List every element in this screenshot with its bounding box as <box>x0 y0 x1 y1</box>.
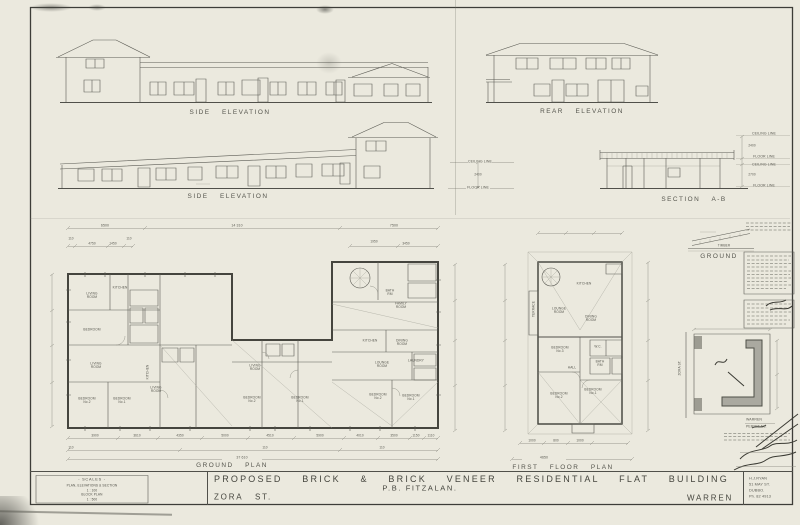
dim: 1000 <box>576 439 583 443</box>
signature-block <box>724 414 798 470</box>
room-label: DINING ROOM <box>585 315 597 322</box>
architect-line: Ph. 82 4913 <box>749 495 771 499</box>
terrace-label: TERRACE <box>532 301 536 317</box>
room-label: BEDROOM No.2 <box>243 396 260 403</box>
room-label: W.C. <box>594 345 601 349</box>
room-label: BATH RM <box>386 289 395 296</box>
dim-ground-overall: 37 610 <box>236 456 247 460</box>
dim: 1450 <box>109 242 116 246</box>
room-label: BEDROOM No.2 <box>78 397 95 404</box>
room-label: LIVING ROOM <box>90 362 101 369</box>
room-label: LIVING ROOM <box>249 364 260 371</box>
room-label: BATH RM <box>596 360 605 367</box>
scales-line2: BLOCK PLAN <box>81 493 102 497</box>
room-label: KITCHEN <box>577 282 592 286</box>
scales-value1: 1 : 100 <box>87 489 98 493</box>
detail-ground-label: GROUND <box>700 253 737 260</box>
room-label: BEDROOM No.2 <box>550 392 567 399</box>
floor-line-right2-label: FLOOR LINE <box>753 184 775 188</box>
dim: 4350 <box>176 434 183 438</box>
scanned-drawing-page: SIDE ELEVATION REAR ELEVATION SIDE ELEVA… <box>0 0 800 525</box>
section-drawing <box>448 135 790 189</box>
dim: 3500 <box>390 434 397 438</box>
stamp-town: WARREN <box>746 418 762 422</box>
sheet-frame <box>31 8 793 505</box>
dim: 1150 <box>412 434 419 438</box>
scales-heading: - SCALES - <box>78 478 106 482</box>
dim-first-overall: 4650 <box>540 456 548 460</box>
room-label: LAUNDRY <box>408 359 424 363</box>
dim: 4750 <box>88 242 95 246</box>
room-label: FAMILY ROOM <box>395 302 407 309</box>
dim: 3450 <box>402 242 409 246</box>
dim: 3610 <box>133 434 140 438</box>
dim: 3900 <box>91 434 98 438</box>
scales-value2: 1 : 500 <box>87 498 98 502</box>
scales-line1: PLAN, ELEVATIONS & SECTION <box>67 484 118 488</box>
section-dim-right1: 2400 <box>748 144 755 148</box>
ceiling-line-left-label: CEILING LINE <box>468 160 492 164</box>
drawing-linework <box>0 0 800 525</box>
dim: 6500 <box>101 224 109 228</box>
room-label: BEDROOM No.1 <box>584 388 601 395</box>
rear-elevation-label: REAR ELEVATION <box>540 108 624 115</box>
side-elevation-top-label: SIDE ELEVATION <box>190 109 271 116</box>
room-label: HALL <box>568 366 576 370</box>
room-label: LIVING ROOM <box>86 292 97 299</box>
first-floor-plan-label: FIRST FLOOR PLAN <box>512 464 613 471</box>
dim: 800 <box>553 439 559 443</box>
town-name: WARREN <box>687 493 733 502</box>
dim: 4010 <box>356 434 363 438</box>
room-label: KITCHEN <box>113 286 128 290</box>
section-label: SECTION A-B <box>661 196 726 203</box>
first-floor-plan-drawing <box>528 252 632 434</box>
notes-block <box>744 223 794 328</box>
drawing-sheet: SIDE ELEVATION REAR ELEVATION SIDE ELEVA… <box>0 0 800 525</box>
ceiling-line-right1-label: CEILING LINE <box>752 132 776 136</box>
dim: 1000 <box>528 439 535 443</box>
detail-timber-label: TIMBER <box>718 244 730 248</box>
room-label: BEDROOM No.2 <box>369 393 386 400</box>
room-label: DINING ROOM <box>396 339 408 346</box>
room-label: BEDROOM No.1 <box>291 396 308 403</box>
room-label: KITCHEN <box>363 339 378 343</box>
street-name: ZORA ST. <box>214 492 272 501</box>
dim: 14 310 <box>231 224 242 228</box>
ground-plan-label: GROUND PLAN <box>196 462 268 469</box>
zora-st-vertical-label: ZORA ST. <box>678 360 682 375</box>
sheet-title: PROPOSED BRICK & BRICK VENEER RESIDENTIA… <box>214 474 729 484</box>
section-dim-right2: 2700 <box>748 173 755 177</box>
dim: 1110 <box>428 434 435 438</box>
room-label: LIVING ROOM <box>150 386 161 393</box>
floor-line-right1-label: FLOOR LINE <box>753 155 775 159</box>
dim: 1950 <box>370 240 377 244</box>
dim: 4510 <box>266 434 273 438</box>
ceiling-line-right2-label: CEILING LINE <box>752 163 776 167</box>
dim: 110 <box>68 237 73 241</box>
side-elevation-top-drawing <box>56 40 432 103</box>
section-dim-left: 2400 <box>474 173 481 177</box>
dim: 110 <box>262 446 267 450</box>
room-label: KITCHEN <box>146 365 150 380</box>
room-label: LOUNGE ROOM <box>375 361 389 368</box>
rear-elevation-drawing <box>486 44 658 103</box>
architect-line: 51 MAY ST. <box>749 483 770 487</box>
dim: 110 <box>379 446 384 450</box>
room-label: BEDROOM No.3 <box>551 346 568 353</box>
room-label: BEDROOM No.1 <box>402 394 419 401</box>
side-elevation-mid-label: SIDE ELEVATION <box>188 193 269 200</box>
stamp-permit: PERMIT No. <box>746 425 767 429</box>
block-plan-drawing <box>686 328 779 418</box>
client-name: P.B. FITZALAN. <box>382 485 457 494</box>
dim: 110 <box>68 446 73 450</box>
room-label: BEDROOM No.1 <box>113 397 130 404</box>
dim: 5000 <box>221 434 228 438</box>
room-label: BEDROOM <box>83 328 100 332</box>
architect-line: H.J.RYAN <box>749 477 767 481</box>
dim: 110 <box>126 237 131 241</box>
floor-line-left-label: FLOOR LINE <box>467 186 489 190</box>
dim: 7500 <box>390 224 398 228</box>
room-label: LOUNGE ROOM <box>552 307 566 314</box>
dim: 5900 <box>316 434 323 438</box>
architect-line: DUBBO. <box>749 489 764 493</box>
side-elevation-mid-drawing <box>58 123 438 189</box>
